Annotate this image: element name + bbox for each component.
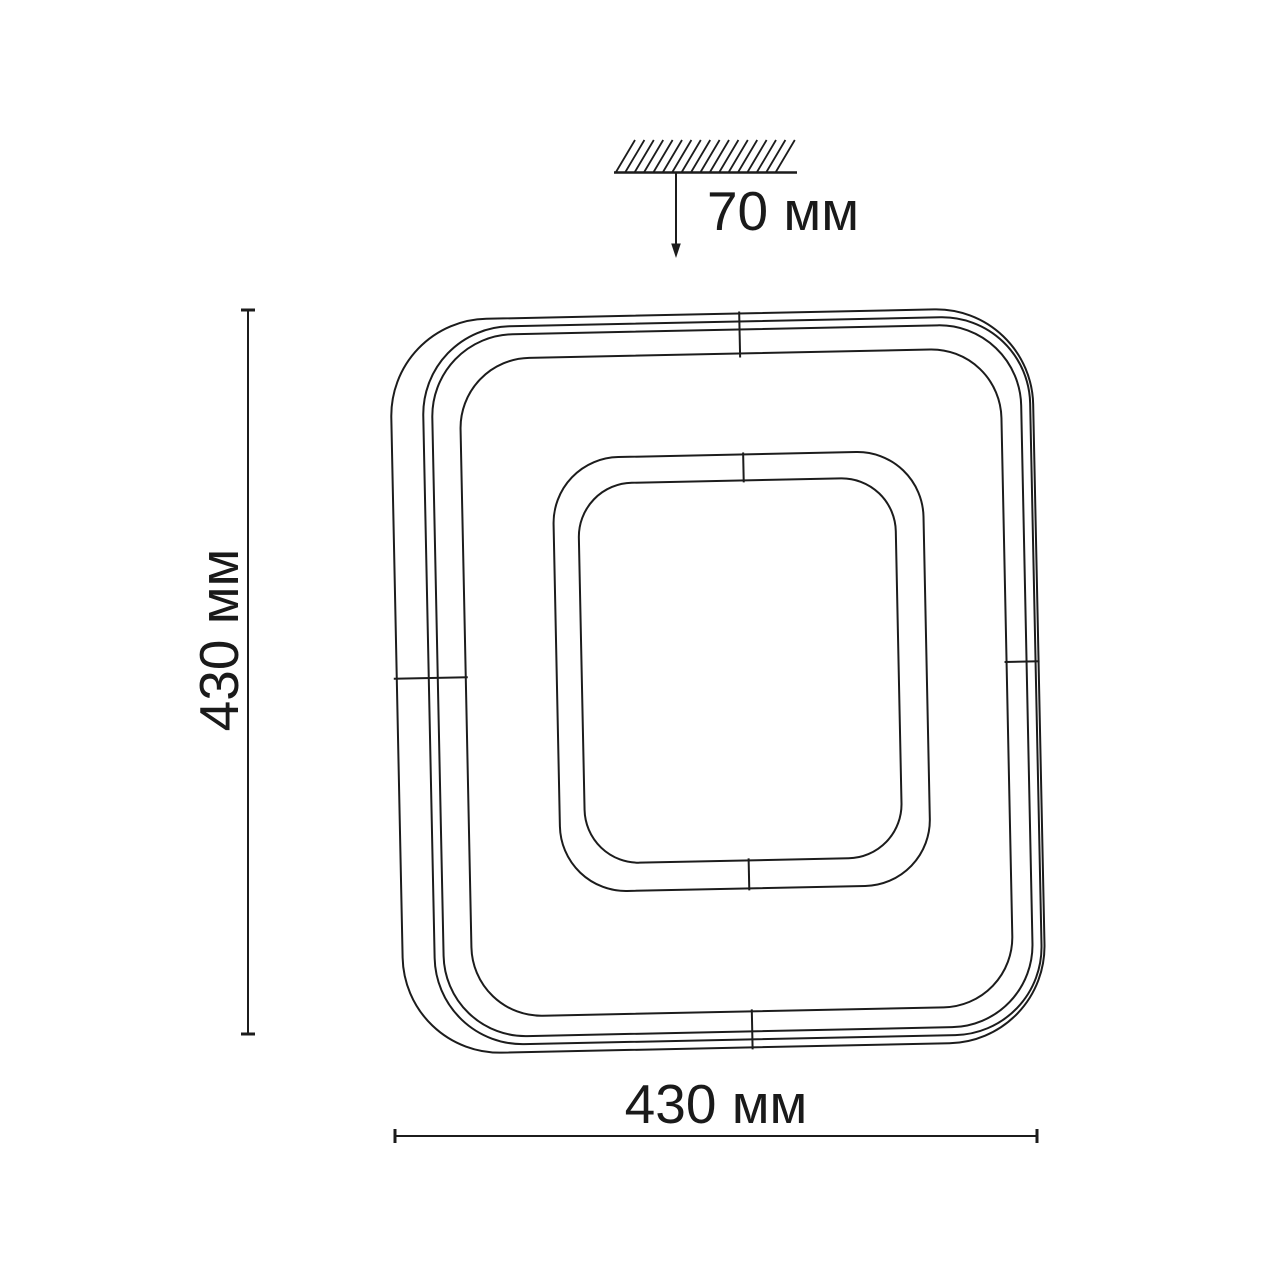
offset-arrow-head-icon: [671, 244, 681, 259]
seam-tick-left: [394, 677, 468, 679]
drawing-canvas: 70 мм 430 мм 430 м: [0, 0, 1280, 1280]
inner-square-inner-edge: [578, 477, 903, 864]
outer-rim-line-1: [421, 315, 1043, 1046]
fixture-drawing: [386, 305, 1047, 1056]
seam-tick-top: [739, 311, 740, 357]
dimension-drawing: 70 мм 430 мм 430 м: [0, 0, 1280, 1280]
width-dimension-label: 430 мм: [625, 1073, 808, 1135]
height-dimension: 430 мм: [188, 310, 255, 1034]
seam-tick-right: [1005, 661, 1040, 662]
ceiling-hatch-lines: [616, 140, 795, 172]
seam-tick-inner-bottom: [749, 858, 750, 890]
outer-silhouette: [389, 307, 1046, 1054]
offset-label: 70 мм: [707, 180, 859, 242]
seam-tick-inner-top: [743, 452, 744, 482]
outer-rim-line-2: [431, 324, 1035, 1038]
seam-tick-bottom: [752, 1009, 753, 1049]
width-dimension: 430 мм: [395, 1073, 1037, 1143]
ceiling-symbol: [614, 140, 797, 173]
height-dimension-label: 430 мм: [188, 549, 250, 732]
outer-frame-inner-edge: [459, 348, 1014, 1017]
inner-square-outer-edge: [552, 451, 931, 893]
offset-arrow: [671, 174, 681, 259]
